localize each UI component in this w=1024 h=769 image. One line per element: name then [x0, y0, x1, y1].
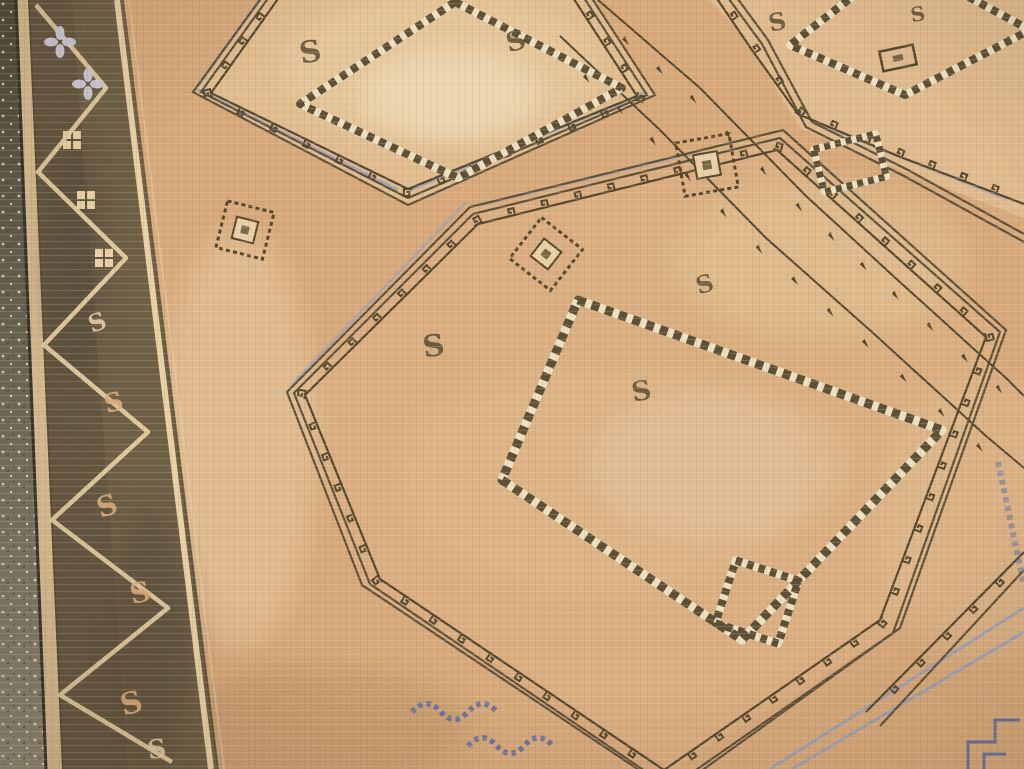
vignette-overlay — [0, 0, 1024, 769]
rug-photograph: S S S S S S S — [0, 0, 1024, 769]
